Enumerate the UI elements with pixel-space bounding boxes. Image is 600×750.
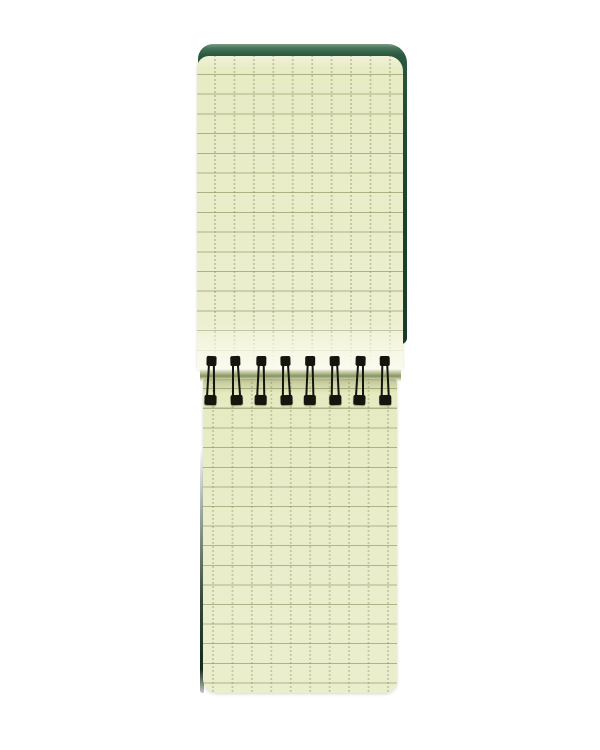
spiral-loop-left-wire (282, 362, 285, 399)
spiral-loop-bottom-knot (204, 395, 216, 405)
spiral-loop (278, 356, 294, 405)
notebook-photo (0, 0, 600, 750)
spiral-loop-bottom-knot (329, 395, 341, 405)
spiral-loop (378, 356, 394, 405)
spiral-loop-bottom-knot (379, 395, 391, 405)
spiral-loop-right-wire (213, 362, 216, 399)
wire-o-spiral-binding (204, 356, 393, 405)
spiral-loop-left-wire (381, 362, 384, 399)
spiral-loop-left-wire (232, 362, 234, 399)
bottom-grid-page (203, 379, 397, 693)
spiral-loop-left-wire (206, 362, 211, 399)
top-grid-page (197, 56, 403, 371)
spiral-loop (253, 356, 269, 405)
spiral-loop (303, 356, 318, 405)
spiral-loop-right-wire (312, 362, 315, 399)
spiral-loop-left-wire (256, 362, 260, 399)
spiral-loop (228, 356, 245, 405)
spiral-loop-right-wire (287, 362, 292, 399)
spiral-loop-right-wire (336, 362, 340, 399)
spiral-loop (328, 356, 344, 405)
spiral-loop-bottom-knot (230, 395, 242, 405)
spiral-loop-right-wire (362, 362, 365, 399)
spiral-loop-right-wire (237, 362, 242, 399)
spiral-loop-left-wire (355, 362, 360, 399)
spiral-loop-right-wire (386, 362, 390, 399)
spiral-loop (352, 356, 369, 405)
spiral-loop (203, 356, 219, 405)
spiral-loop-right-wire (263, 362, 266, 399)
spiral-loop-bottom-knot (353, 395, 365, 405)
spiral-loop-left-wire (306, 362, 310, 399)
spiral-loop-bottom-knot (254, 395, 266, 405)
spiral-loop-bottom-knot (280, 395, 292, 405)
spiral-loop-left-wire (331, 362, 334, 399)
spiral-loop-bottom-knot (304, 395, 316, 405)
